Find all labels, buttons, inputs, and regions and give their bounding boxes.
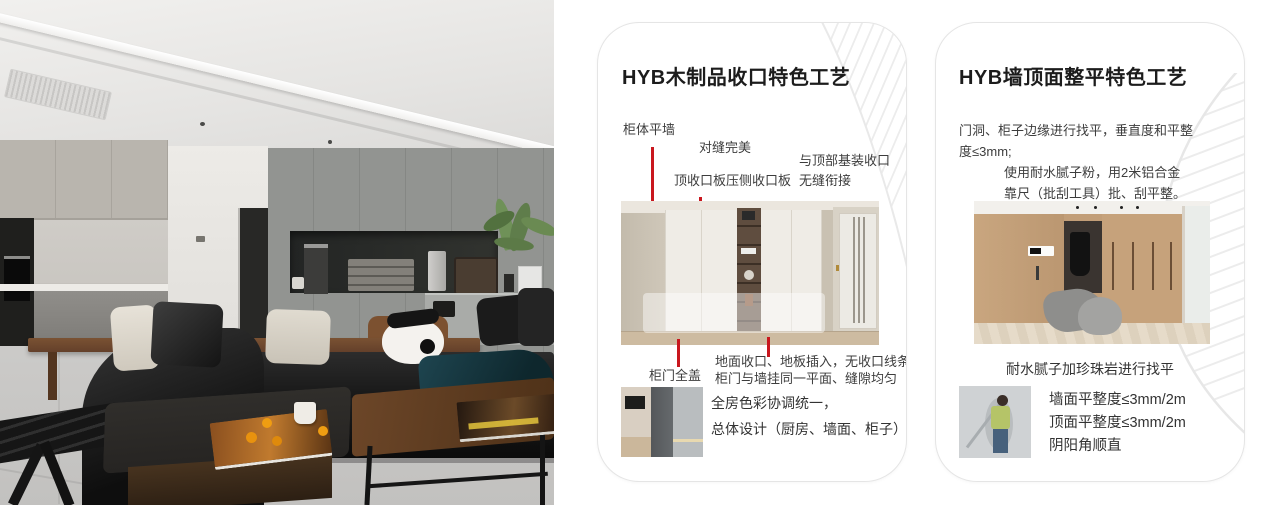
dining-table-leg (48, 352, 57, 400)
wood-floor (621, 331, 879, 345)
white-door (1182, 206, 1210, 334)
interior-thumbnail-image (621, 387, 703, 457)
coffee-machine (304, 244, 328, 294)
kitchen-countertop (0, 284, 168, 291)
ceiling-spotlight (328, 140, 332, 144)
callout-line (677, 339, 680, 367)
built-in-coffee-machine (4, 256, 30, 301)
under-cabinet-light (673, 439, 703, 442)
putty-caption: 耐水腻子加珍珠岩进行找平 (936, 359, 1244, 379)
tall-gray-cabinet (651, 387, 673, 457)
light-switch (196, 236, 205, 242)
door-handle (1036, 266, 1039, 280)
orange-fruit (246, 432, 257, 443)
wood-hallway-image (974, 201, 1210, 344)
para-putty: 使用耐水腻子粉，用2米铝合金靠尺（批刮工具）批、刮平整。 (1004, 162, 1186, 204)
worker-head (997, 395, 1008, 406)
callout-floor-line2: 柜门与墙挂同一平面、缝隙均匀 (715, 370, 897, 388)
callout-top-join: 与顶部基装收口无缝衔接 (799, 151, 895, 191)
spec-list: 墙面平整度≤3mm/2m 顶面平整度≤3mm/2m 阴阳角顺直 (1049, 389, 1186, 458)
callout-door-full-cover: 柜门全盖 (649, 367, 701, 385)
card1-title: HYB木制品收口特色工艺 (622, 61, 850, 90)
bean-bag (1078, 297, 1122, 335)
interior-door (833, 207, 879, 333)
summary-line: 全房色彩协调统一， (711, 394, 837, 412)
hanging-clothes (1070, 232, 1090, 276)
tv-screen (625, 396, 645, 409)
callout-top-board: 顶收口板压侧收口板 (674, 172, 791, 190)
callout-seam-perfect: 对缝完美 (699, 139, 751, 157)
pillow-black (150, 301, 223, 368)
worker-jeans (993, 429, 1008, 453)
worker-shirt (991, 406, 1010, 429)
light-glare (643, 293, 825, 333)
wood-table-leg (540, 430, 545, 505)
light-cabinet (673, 387, 703, 457)
card2-title: HYB墙顶面整平特色工艺 (959, 61, 1187, 90)
cabinet-render-image (621, 201, 879, 345)
callout-cabinet-wall: 柜体平墙 (623, 121, 675, 139)
worker-thumbnail-image (959, 386, 1031, 458)
plant (468, 198, 554, 294)
kitchen-upper-cabinets (0, 140, 168, 220)
ceiling-strip (974, 201, 1210, 214)
espresso-cup (292, 277, 304, 289)
para-leveling: 门洞、柜子边缘进行找平，垂直度和平整度≤3mm; (959, 120, 1199, 162)
orange-fruit (262, 418, 272, 428)
pillow-cream (265, 309, 331, 365)
summary-line: 总体设计（厨房、墙面、柜子） (711, 420, 907, 438)
decor-bottle (504, 274, 514, 292)
cup-rack (348, 259, 414, 291)
orange-fruit (272, 436, 282, 446)
door-knob (836, 265, 839, 271)
chrome-appliance (428, 251, 446, 291)
control-panel (1028, 246, 1054, 256)
living-room-photo (0, 0, 554, 505)
orange-fruit (318, 426, 328, 436)
coffee-mug (294, 402, 316, 424)
card-wall-leveling: HYB墙顶面整平特色工艺 门洞、柜子边缘进行找平，垂直度和平整度≤3mm; 使用… (935, 22, 1245, 482)
callout-floor-line1: 地面收口、地板插入，无收口线条 (715, 353, 907, 371)
magazine (456, 394, 554, 443)
ceiling-spotlight (200, 122, 205, 126)
spec-wall-flatness: 墙面平整度≤3mm/2m (1049, 389, 1186, 412)
back-pillow (518, 288, 554, 346)
card-wood-finish: HYB木制品收口特色工艺 柜体平墙 对缝完美 顶收口板压侧收口板 与顶部基装收口… (597, 22, 907, 482)
page: HYB木制品收口特色工艺 柜体平墙 对缝完美 顶收口板压侧收口板 与顶部基装收口… (0, 0, 1280, 505)
spec-corners-straight: 阴阳角顺直 (1049, 435, 1186, 458)
wall-niche (290, 231, 498, 293)
spec-ceiling-flatness: 顶面平整度≤3mm/2m (1049, 412, 1186, 435)
